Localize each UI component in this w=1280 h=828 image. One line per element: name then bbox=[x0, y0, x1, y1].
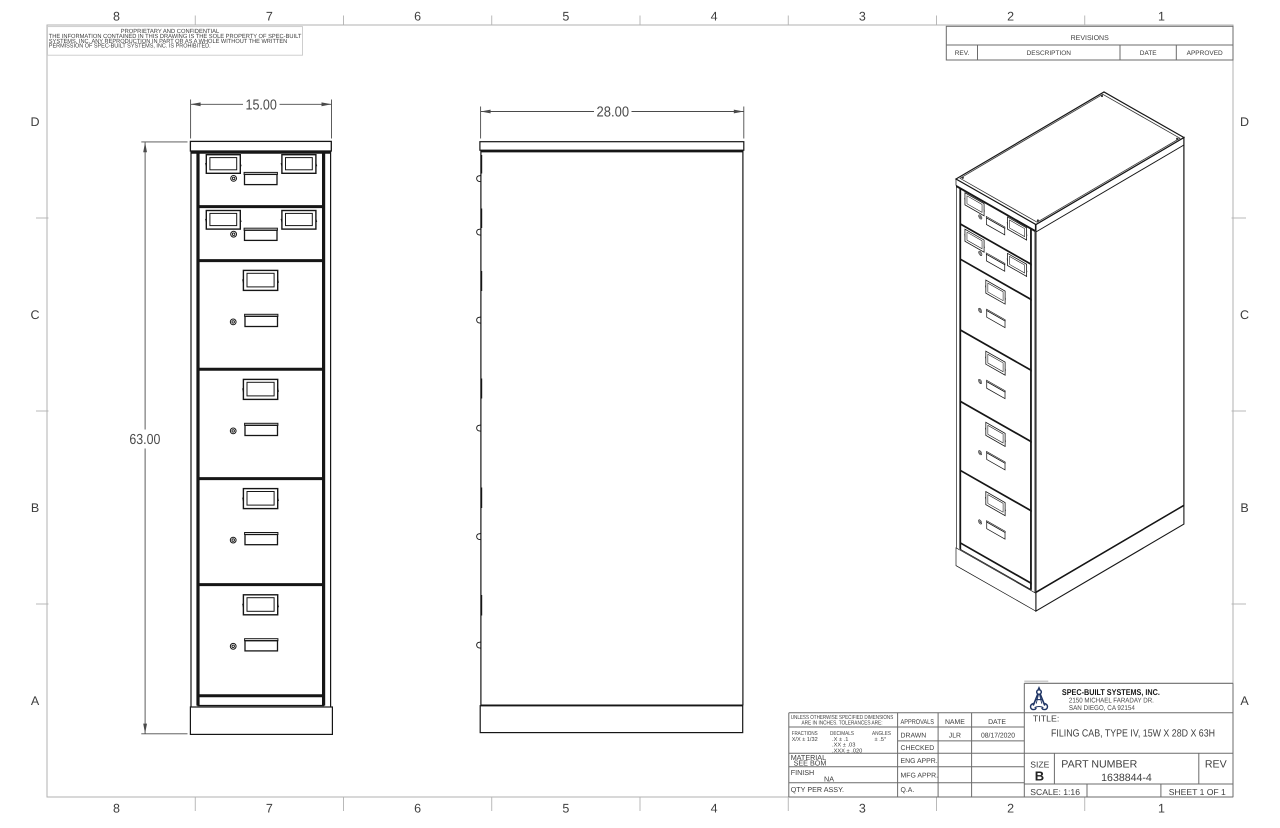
svg-text:SHEET 1 OF 1: SHEET 1 OF 1 bbox=[1169, 787, 1226, 797]
svg-text:8: 8 bbox=[113, 802, 120, 816]
svg-text:TITLE:: TITLE: bbox=[1033, 714, 1059, 724]
svg-text:SAN DIEGO, CA 92154: SAN DIEGO, CA 92154 bbox=[1069, 705, 1135, 712]
svg-text:28.00: 28.00 bbox=[597, 105, 630, 121]
svg-text:APPROVALS: APPROVALS bbox=[901, 719, 935, 726]
svg-text:4: 4 bbox=[711, 10, 718, 24]
svg-text:D: D bbox=[1240, 115, 1249, 129]
svg-text:1: 1 bbox=[1158, 802, 1165, 816]
svg-text:08/17/2020: 08/17/2020 bbox=[981, 732, 1015, 739]
svg-text:C: C bbox=[30, 308, 39, 322]
svg-text:6: 6 bbox=[414, 10, 421, 24]
svg-text:SEE BOM: SEE BOM bbox=[794, 759, 827, 768]
svg-text:A: A bbox=[31, 694, 40, 708]
svg-text:APPROVED: APPROVED bbox=[1187, 50, 1223, 57]
svg-text:NAME: NAME bbox=[945, 719, 965, 726]
svg-text:Q.A.: Q.A. bbox=[901, 787, 915, 794]
svg-text:± .5°: ± .5° bbox=[875, 737, 887, 743]
svg-text:3: 3 bbox=[859, 802, 866, 816]
svg-text:.XXX ± .020: .XXX ± .020 bbox=[832, 748, 862, 754]
svg-text:X/X ± 1/32: X/X ± 1/32 bbox=[792, 736, 818, 743]
svg-text:SCALE: 1:16: SCALE: 1:16 bbox=[1030, 787, 1080, 797]
svg-text:8: 8 bbox=[113, 10, 120, 24]
svg-text:B: B bbox=[31, 501, 39, 515]
svg-text:CHECKED: CHECKED bbox=[901, 745, 935, 752]
svg-text:REVISIONS: REVISIONS bbox=[1071, 35, 1109, 42]
svg-text:MFG APPR.: MFG APPR. bbox=[901, 772, 939, 779]
svg-text:REV.: REV. bbox=[955, 50, 970, 57]
svg-text:1638844-4: 1638844-4 bbox=[1101, 772, 1152, 784]
svg-text:2: 2 bbox=[1007, 802, 1014, 816]
svg-text:FILING CAB, TYPE IV, 15W X 28D: FILING CAB, TYPE IV, 15W X 28D X 63H bbox=[1051, 729, 1215, 740]
svg-text:DATE: DATE bbox=[1140, 50, 1158, 57]
svg-text:3: 3 bbox=[859, 10, 866, 24]
svg-text:5: 5 bbox=[562, 10, 569, 24]
svg-text:5: 5 bbox=[562, 802, 569, 816]
svg-text:NA: NA bbox=[824, 774, 834, 783]
svg-text:D: D bbox=[30, 115, 39, 129]
svg-text:REV: REV bbox=[1205, 759, 1228, 771]
svg-text:6: 6 bbox=[414, 802, 421, 816]
svg-text:2150 MICHAEL FARADAY DR.: 2150 MICHAEL FARADAY DR. bbox=[1069, 697, 1154, 704]
svg-text:7: 7 bbox=[266, 10, 273, 24]
svg-text:JLR: JLR bbox=[949, 732, 961, 739]
svg-text:ARE IN INCHES. TOLERANCES ARE: ARE IN INCHES. TOLERANCES ARE: bbox=[802, 720, 883, 727]
svg-text:63.00: 63.00 bbox=[129, 432, 160, 448]
svg-text:15.00: 15.00 bbox=[245, 97, 277, 113]
svg-text:DRAWN: DRAWN bbox=[901, 732, 927, 739]
svg-text:7: 7 bbox=[266, 802, 273, 816]
svg-text:PART NUMBER: PART NUMBER bbox=[1061, 759, 1137, 771]
svg-text:FINISH: FINISH bbox=[791, 768, 815, 777]
svg-text:QTY PER ASSY.: QTY PER ASSY. bbox=[791, 785, 844, 794]
svg-text:DESCRIPTION: DESCRIPTION bbox=[1027, 50, 1072, 57]
svg-text:SPEC-BUILT SYSTEMS, INC.: SPEC-BUILT SYSTEMS, INC. bbox=[1062, 687, 1160, 697]
svg-text:2: 2 bbox=[1007, 10, 1014, 24]
svg-text:A: A bbox=[1240, 694, 1249, 708]
svg-text:ENG APPR.: ENG APPR. bbox=[901, 758, 938, 765]
svg-text:C: C bbox=[1240, 308, 1249, 322]
svg-text:B: B bbox=[1240, 501, 1248, 515]
svg-text:4: 4 bbox=[711, 802, 718, 816]
svg-text:PERMISSION OF SPEC-BUILT SYSTE: PERMISSION OF SPEC-BUILT SYSTEMS, INC. I… bbox=[49, 43, 211, 50]
svg-text:B: B bbox=[1035, 769, 1044, 784]
svg-text:DATE: DATE bbox=[988, 719, 1006, 726]
svg-text:1: 1 bbox=[1158, 10, 1165, 24]
